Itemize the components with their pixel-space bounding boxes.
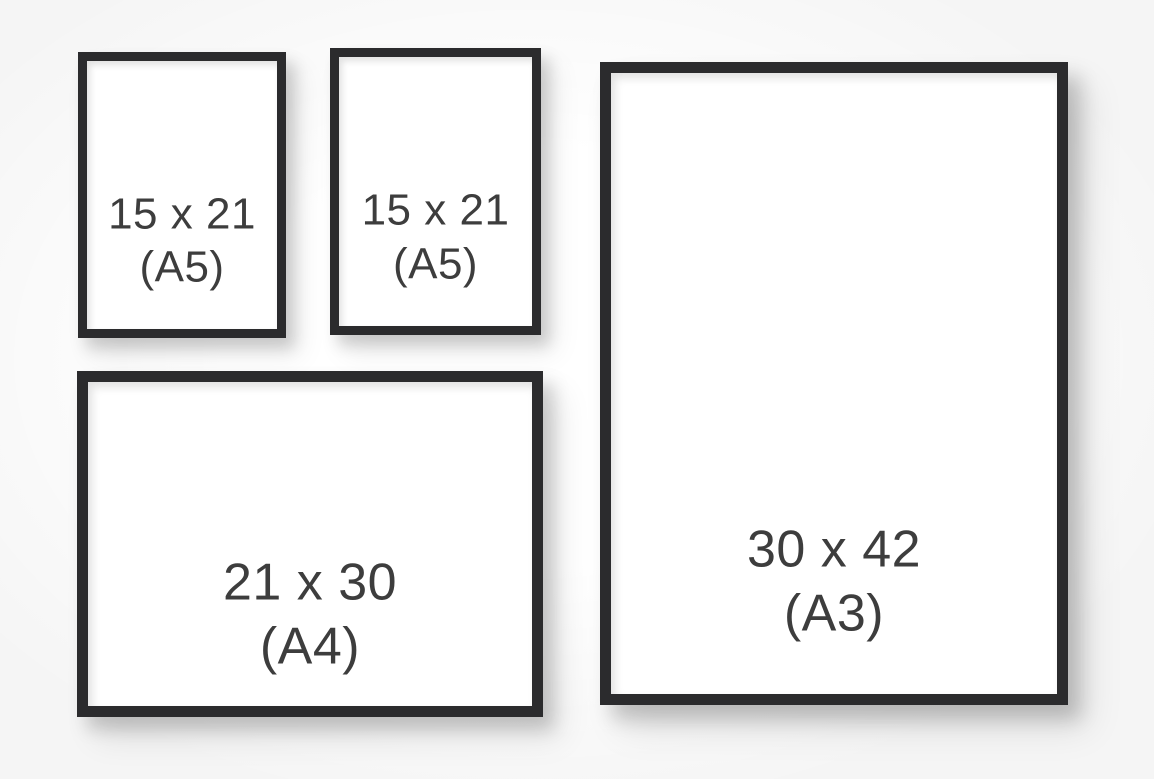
paper-format-text: (A3) [747,582,921,645]
picture-frame-a5-middle: 15 x 21 (A5) [330,48,541,335]
frame-size-diagram: 15 x 21 (A5) 15 x 21 (A5) 30 x 42 (A3) 2… [0,0,1154,779]
picture-frame-a3-right: 30 x 42 (A3) [600,62,1068,705]
size-dimensions-text: 15 x 21 [362,184,510,238]
size-dimensions-text: 21 x 30 [223,552,397,615]
picture-frame-a4-bottom: 21 x 30 (A4) [77,371,543,717]
frame-size-label: 15 x 21 (A5) [362,184,510,291]
paper-format-text: (A5) [362,237,510,291]
paper-format-text: (A4) [223,615,397,678]
picture-frame-a5-left: 15 x 21 (A5) [78,52,286,338]
frame-size-label: 30 x 42 (A3) [747,519,921,646]
size-dimensions-text: 15 x 21 [108,187,256,241]
frame-size-label: 21 x 30 (A4) [223,552,397,679]
size-dimensions-text: 30 x 42 [747,519,921,582]
paper-format-text: (A5) [108,241,256,295]
frame-size-label: 15 x 21 (A5) [108,187,256,294]
